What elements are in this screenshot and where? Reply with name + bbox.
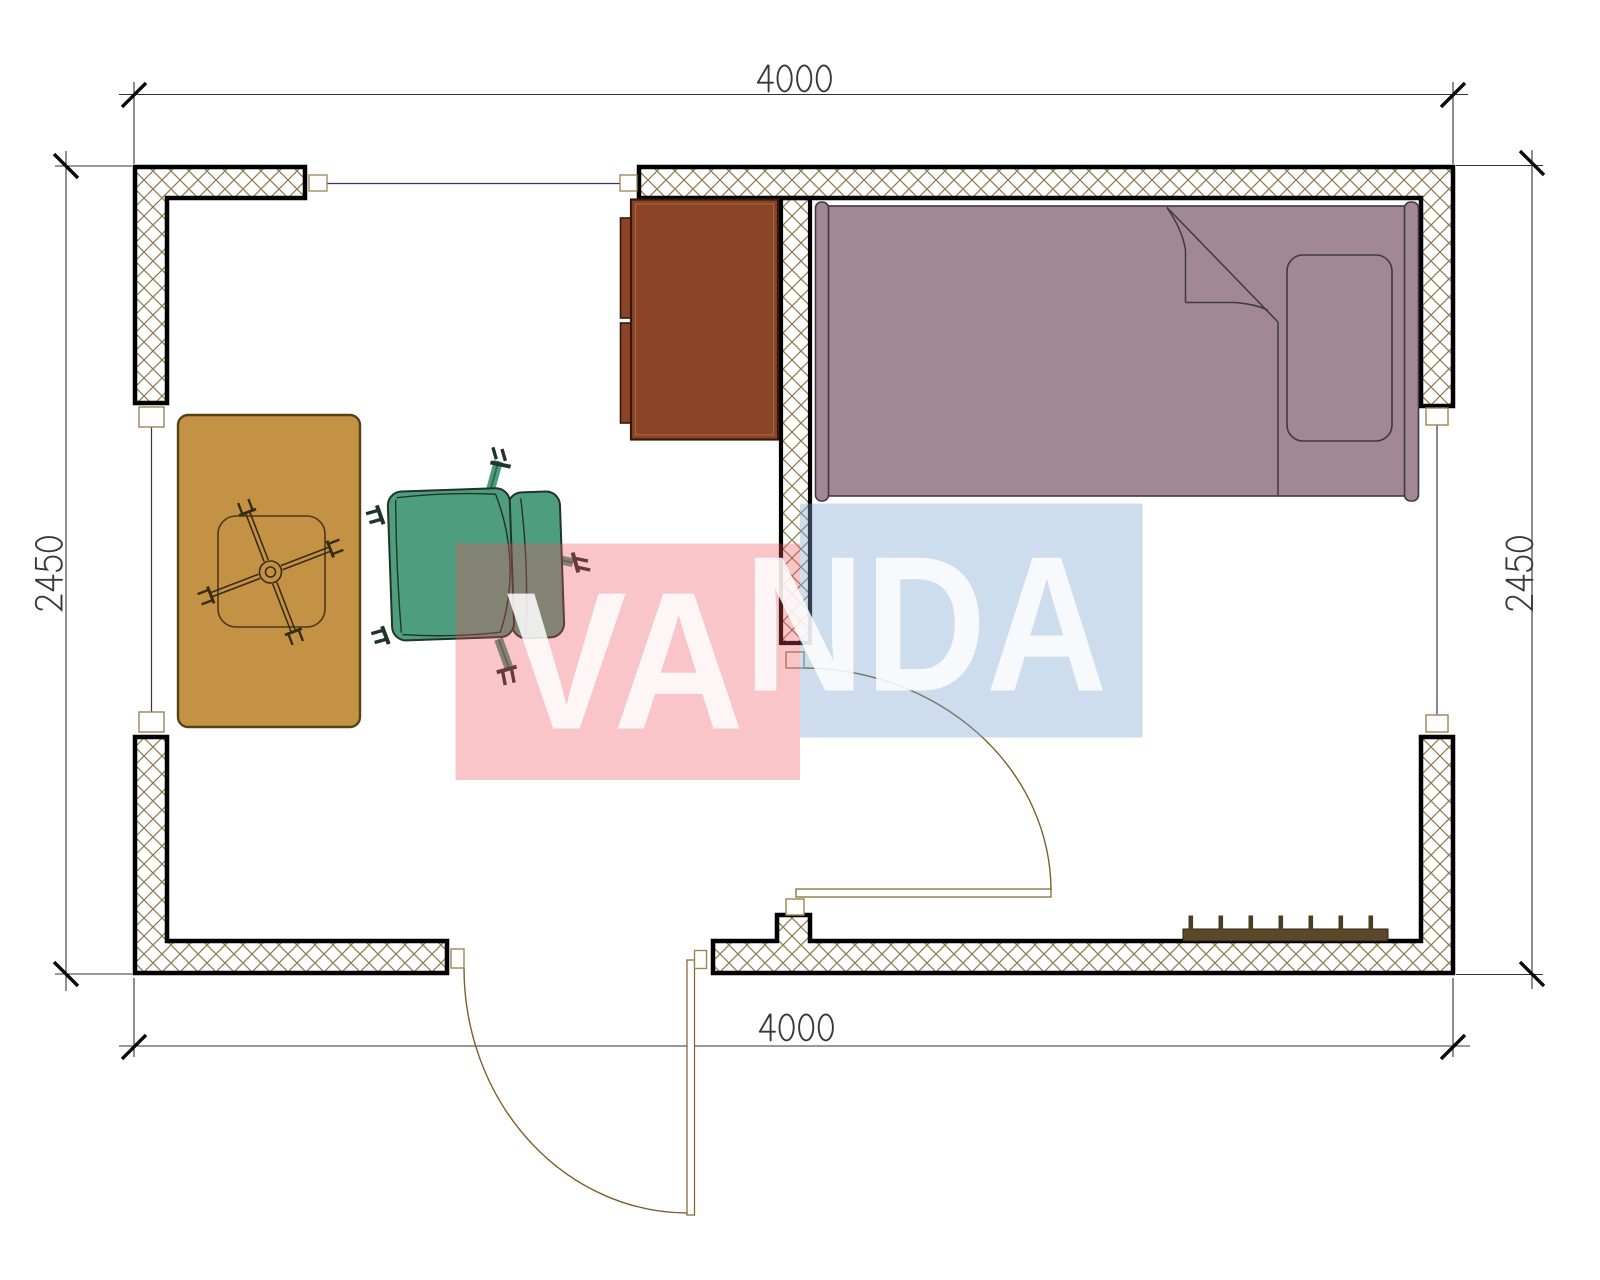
svg-text:VA: VA xyxy=(506,551,744,770)
svg-text:NDA: NDA xyxy=(744,517,1108,733)
